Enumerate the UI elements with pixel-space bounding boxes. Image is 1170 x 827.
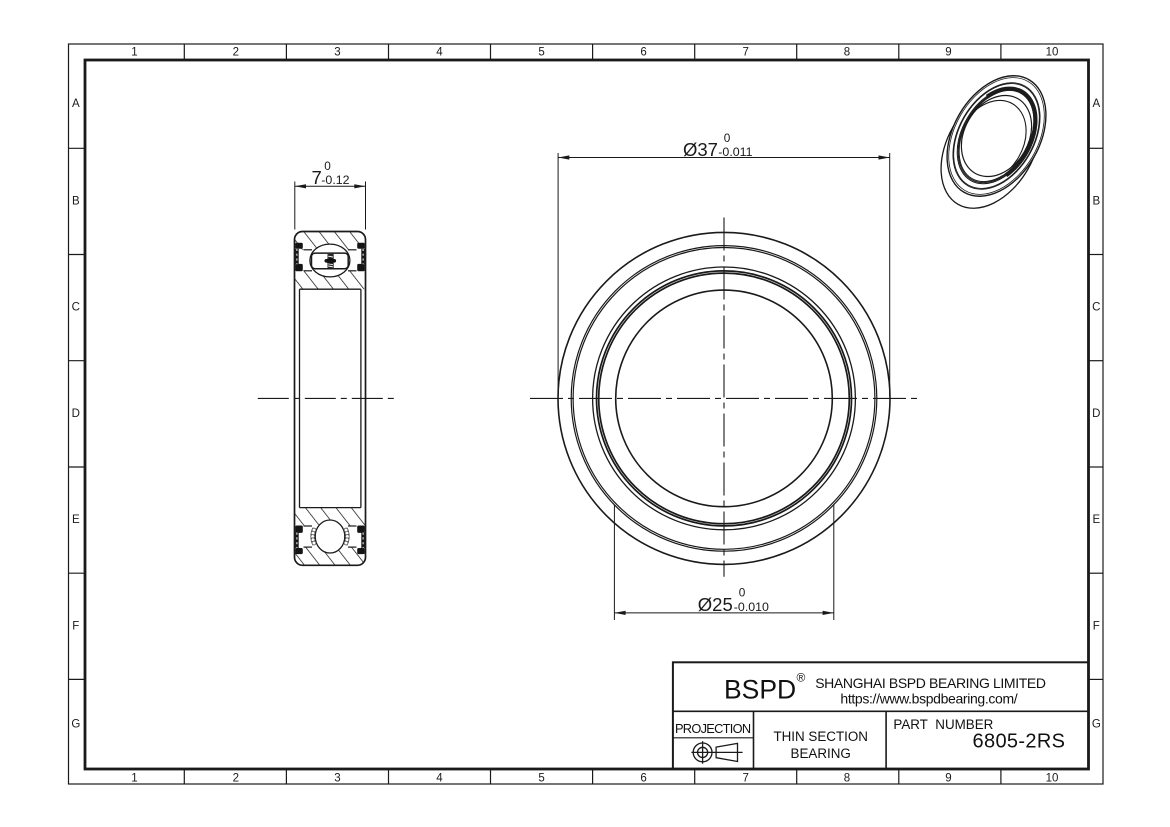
svg-text:BSPD: BSPD [724,675,796,705]
svg-text:8: 8 [844,47,850,59]
svg-text:10: 10 [1046,47,1059,59]
svg-text:5: 5 [538,772,544,784]
svg-text:8: 8 [844,772,850,784]
svg-text:9: 9 [945,47,951,59]
svg-text:https://www.bspdbearing.com/: https://www.bspdbearing.com/ [840,691,1017,707]
svg-text:G: G [1092,718,1101,730]
svg-text:G: G [71,718,80,730]
svg-text:BEARING: BEARING [791,746,851,761]
svg-text:0: 0 [324,159,331,173]
svg-text:F: F [72,620,79,632]
svg-text:10: 10 [1046,772,1059,784]
svg-text:-0.12: -0.12 [321,173,349,187]
svg-text:C: C [1092,302,1100,314]
svg-text:Ø37: Ø37 [683,139,718,160]
svg-text:0: 0 [739,586,746,600]
svg-text:®: ® [797,671,806,685]
svg-text:PROJECTION: PROJECTION [675,721,751,736]
svg-text:4: 4 [436,772,443,784]
svg-text:4: 4 [436,47,443,59]
svg-text:7: 7 [742,47,748,59]
svg-text:E: E [72,514,80,526]
svg-text:THIN SECTION: THIN SECTION [773,729,867,744]
svg-text:3: 3 [334,772,340,784]
svg-text:7: 7 [312,167,322,188]
svg-text:0: 0 [724,131,731,145]
svg-text:A: A [1092,98,1100,110]
svg-text:B: B [1092,196,1100,208]
svg-text:2: 2 [233,772,239,784]
svg-text:SHANGHAI BSPD BEARING LIMITED: SHANGHAI BSPD BEARING LIMITED [815,675,1046,691]
svg-text:1: 1 [131,47,137,59]
svg-text:1: 1 [131,772,137,784]
svg-text:D: D [1092,408,1100,420]
svg-text:6: 6 [640,47,646,59]
svg-text:C: C [72,302,80,314]
svg-text:3: 3 [334,47,340,59]
svg-text:5: 5 [538,47,544,59]
svg-text:B: B [72,196,80,208]
svg-text:A: A [72,98,80,110]
svg-text:E: E [1092,514,1100,526]
svg-text:6: 6 [640,772,646,784]
svg-text:2: 2 [233,47,239,59]
svg-text:Ø25: Ø25 [698,594,733,615]
svg-text:-0.010: -0.010 [734,600,769,614]
svg-text:9: 9 [945,772,951,784]
svg-text:7: 7 [742,772,748,784]
svg-text:D: D [72,408,80,420]
svg-text:6805-2RS: 6805-2RS [973,730,1066,752]
svg-text:-0.011: -0.011 [718,145,752,159]
svg-text:F: F [1093,620,1100,632]
